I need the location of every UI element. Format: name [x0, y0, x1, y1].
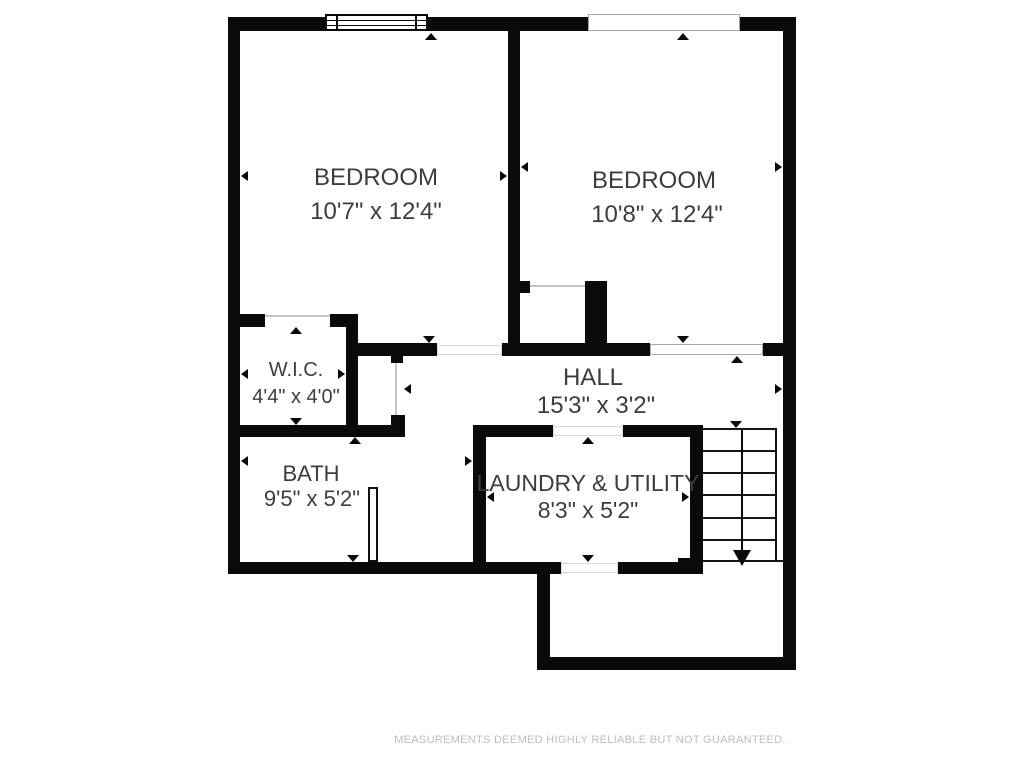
window-end-cap	[336, 16, 338, 29]
dimension-arrow-up-icon	[731, 356, 743, 363]
room-label-bedroom-2: BEDROOM	[592, 167, 716, 195]
window-symbol	[325, 14, 428, 31]
wall	[690, 425, 703, 574]
dimension-arrow-right-icon	[338, 369, 345, 379]
dimension-arrow-up-icon	[677, 33, 689, 40]
wall	[537, 562, 550, 670]
dimension-arrow-up-icon	[349, 437, 361, 444]
dimension-arrow-down-icon	[290, 418, 302, 425]
stair-tread-line	[703, 472, 775, 474]
stair-tread-line	[703, 539, 775, 541]
wall-opening	[650, 344, 763, 355]
dimension-arrow-right-icon	[500, 171, 507, 181]
dimension-arrow-left-icon	[241, 456, 248, 466]
door-opening	[437, 345, 502, 355]
disclaimer-text: MEASUREMENTS DEEMED HIGHLY RELIABLE BUT …	[394, 734, 786, 746]
room-dims-bath: 9'5" x 5'2"	[264, 486, 360, 511]
wall	[585, 281, 607, 344]
door-opening-line	[395, 363, 397, 415]
wall	[346, 314, 358, 437]
wall	[678, 558, 690, 574]
room-label-wic: W.I.C.	[269, 359, 323, 382]
stair-tread-line	[703, 494, 775, 496]
dimension-arrow-right-icon	[775, 384, 782, 394]
wall-opening	[588, 14, 740, 31]
wall	[428, 17, 588, 31]
stair-tread-line	[703, 428, 775, 430]
stair-tread-line	[703, 450, 775, 452]
wall	[508, 281, 530, 293]
wall	[228, 562, 561, 574]
wall	[228, 425, 405, 437]
stairs-direction-line	[741, 430, 743, 552]
dimension-arrow-left-icon	[404, 384, 411, 394]
dimension-arrow-left-icon	[241, 369, 248, 379]
wall	[763, 343, 783, 356]
wall	[502, 343, 650, 356]
dimension-arrow-left-icon	[241, 171, 248, 181]
room-label-hall: HALL	[563, 364, 623, 392]
wall	[228, 17, 240, 574]
dimension-arrow-down-icon	[347, 555, 359, 562]
door-opening-line	[530, 285, 585, 287]
window-pane-lines	[327, 20, 426, 26]
wall	[358, 343, 437, 356]
door-opening-line	[265, 315, 330, 317]
room-dims-laundry: 8'3" x 5'2"	[538, 497, 639, 523]
dimension-arrow-up-icon	[425, 33, 437, 40]
door-opening	[553, 426, 623, 436]
dimension-arrow-right-icon	[465, 456, 472, 466]
room-dims-bedroom-1: 10'7" x 12'4"	[310, 198, 442, 226]
dimension-arrow-down-icon	[677, 336, 689, 343]
door-opening	[561, 563, 618, 573]
dimension-arrow-up-icon	[582, 437, 594, 444]
wall	[783, 17, 796, 670]
window-end-cap	[415, 16, 417, 29]
room-label-laundry: LAUNDRY & UTILITY	[477, 470, 700, 496]
stair-tread-line	[703, 517, 775, 519]
stairs-direction-arrow-icon	[733, 550, 751, 566]
wall	[508, 31, 520, 344]
room-dims-wic: 4'4" x 4'0"	[252, 386, 339, 409]
dimension-arrow-down-icon	[423, 336, 435, 343]
room-dims-hall: 15'3" x 3'2"	[537, 392, 655, 420]
wall	[240, 314, 265, 327]
room-dims-bedroom-2: 10'8" x 12'4"	[591, 201, 723, 229]
dimension-arrow-down-icon	[582, 555, 594, 562]
wall	[391, 415, 405, 427]
wall	[537, 657, 796, 670]
dimension-arrow-up-icon	[290, 327, 302, 334]
room-label-bedroom-1: BEDROOM	[314, 164, 438, 192]
floor-plan: BEDROOM 10'7" x 12'4" BEDROOM 10'8" x 12…	[0, 0, 1024, 768]
room-label-bath: BATH	[282, 461, 339, 486]
dimension-arrow-down-icon	[730, 421, 742, 428]
dimension-arrow-right-icon	[775, 162, 782, 172]
wall	[228, 17, 325, 31]
stair-edge-line	[775, 428, 777, 561]
dimension-arrow-left-icon	[521, 162, 528, 172]
door-leaf	[368, 487, 378, 562]
